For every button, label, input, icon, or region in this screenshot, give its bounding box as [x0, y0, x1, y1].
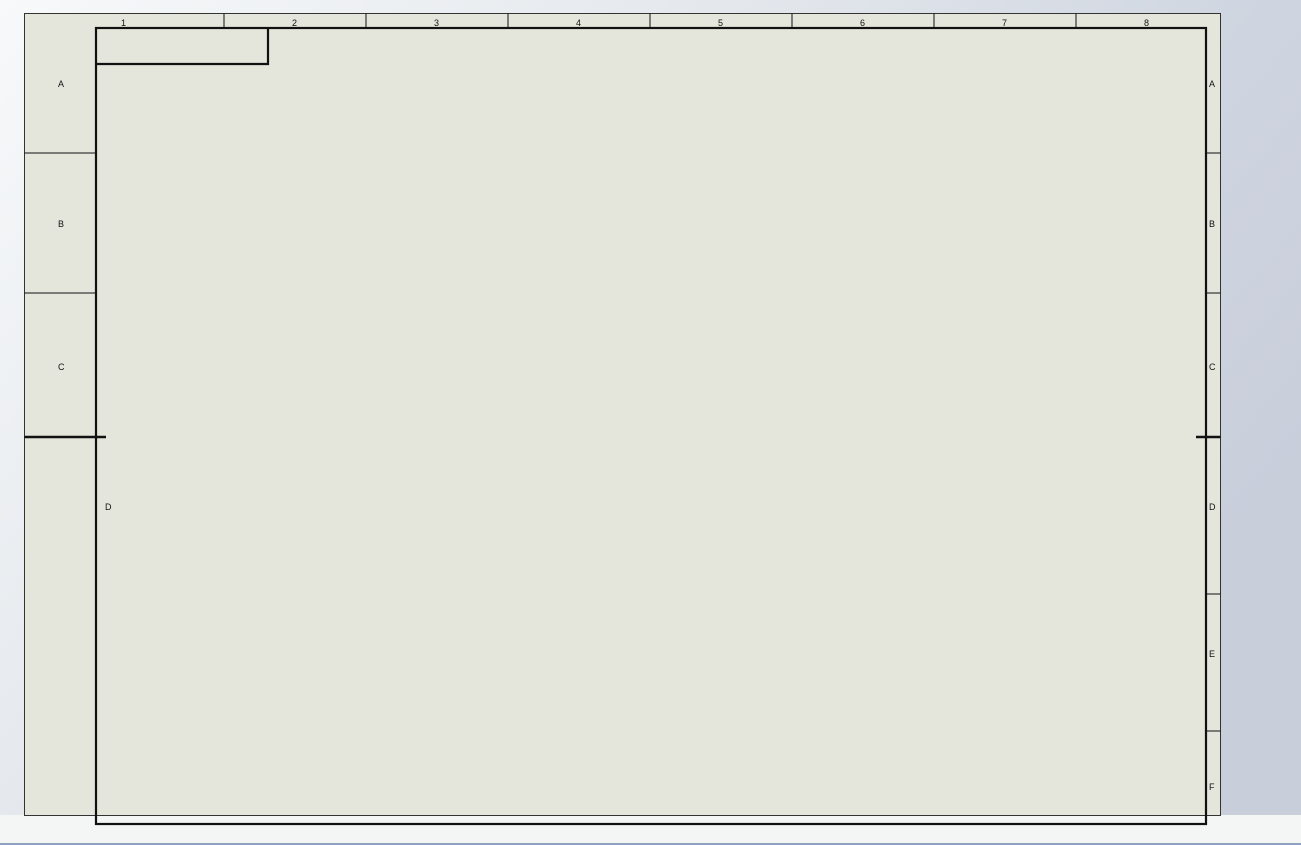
svg-text:1: 1 [121, 18, 126, 28]
svg-text:B: B [1209, 219, 1215, 229]
svg-text:4: 4 [576, 18, 581, 28]
svg-text:B: B [58, 219, 64, 229]
svg-text:5: 5 [718, 18, 723, 28]
svg-text:D: D [1209, 502, 1216, 512]
svg-text:D: D [105, 502, 112, 512]
svg-text:2: 2 [292, 18, 297, 28]
svg-text:F: F [1209, 782, 1215, 792]
svg-text:6: 6 [860, 18, 865, 28]
svg-text:A: A [1209, 79, 1215, 89]
svg-text:C: C [58, 362, 65, 372]
svg-text:7: 7 [1002, 18, 1007, 28]
svg-text:C: C [1209, 362, 1216, 372]
svg-text:3: 3 [434, 18, 439, 28]
svg-text:E: E [1209, 649, 1215, 659]
svg-text:A: A [58, 79, 64, 89]
svg-text:8: 8 [1144, 18, 1149, 28]
